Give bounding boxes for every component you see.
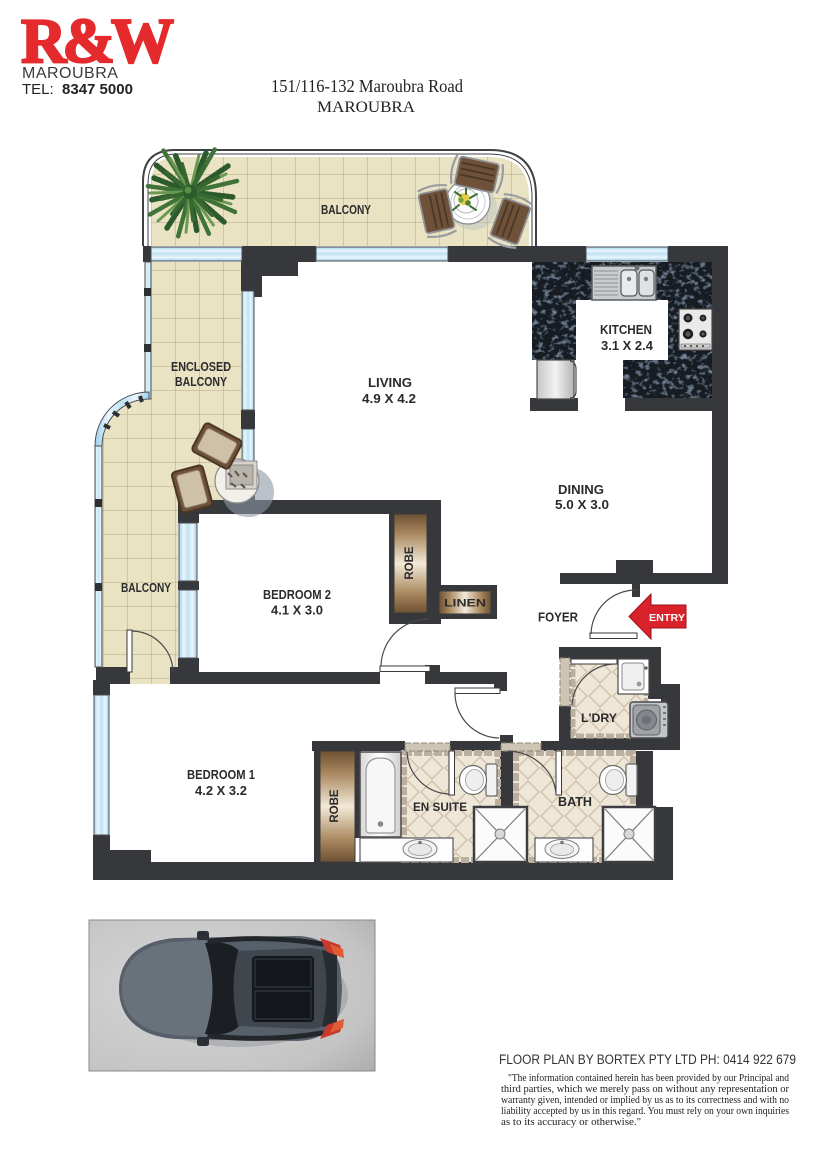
svg-text:4.2 X 3.2: 4.2 X 3.2 (195, 784, 247, 798)
svg-text:as to its accuracy or otherwis: as to its accuracy or otherwise." (501, 1116, 641, 1128)
svg-text:BATH: BATH (558, 795, 592, 809)
svg-text:ENTRY: ENTRY (649, 612, 685, 624)
svg-text:BEDROOM 2: BEDROOM 2 (263, 587, 331, 602)
svg-text:BEDROOM 1: BEDROOM 1 (187, 767, 255, 782)
svg-text:DINING: DINING (558, 482, 604, 497)
svg-text:ROBE: ROBE (329, 789, 341, 823)
svg-text:5.0 X 3.0: 5.0 X 3.0 (555, 498, 609, 512)
svg-text:LINEN: LINEN (444, 598, 486, 610)
svg-text:BALCONY: BALCONY (175, 375, 228, 389)
svg-text:FLOOR PLAN BY BORTEX PTY LTD P: FLOOR PLAN BY BORTEX PTY LTD PH: 0414 92… (499, 1052, 796, 1067)
svg-text:TEL: 8347 5000: TEL: 8347 5000 (22, 81, 133, 98)
svg-text:FOYER: FOYER (538, 611, 578, 625)
svg-text:MAROUBRA: MAROUBRA (317, 99, 415, 116)
svg-text:4.1 X 3.0: 4.1 X 3.0 (271, 604, 323, 618)
svg-text:MAROUBRA: MAROUBRA (22, 65, 118, 82)
svg-text:LIVING: LIVING (368, 375, 412, 390)
svg-text:BALCONY: BALCONY (121, 581, 172, 595)
svg-text:151/116-132 Maroubra Road: 151/116-132 Maroubra Road (271, 76, 463, 96)
svg-text:4.9 X 4.2: 4.9 X 4.2 (362, 392, 416, 406)
svg-text:L'DRY: L'DRY (581, 711, 617, 725)
svg-text:ROBE: ROBE (404, 546, 416, 580)
svg-text:KITCHEN: KITCHEN (600, 323, 652, 337)
svg-text:BALCONY: BALCONY (321, 202, 371, 217)
svg-text:EN SUITE: EN SUITE (413, 800, 467, 814)
svg-text:3.1 X 2.4: 3.1 X 2.4 (601, 339, 653, 353)
svg-text:ENCLOSED: ENCLOSED (171, 360, 231, 374)
